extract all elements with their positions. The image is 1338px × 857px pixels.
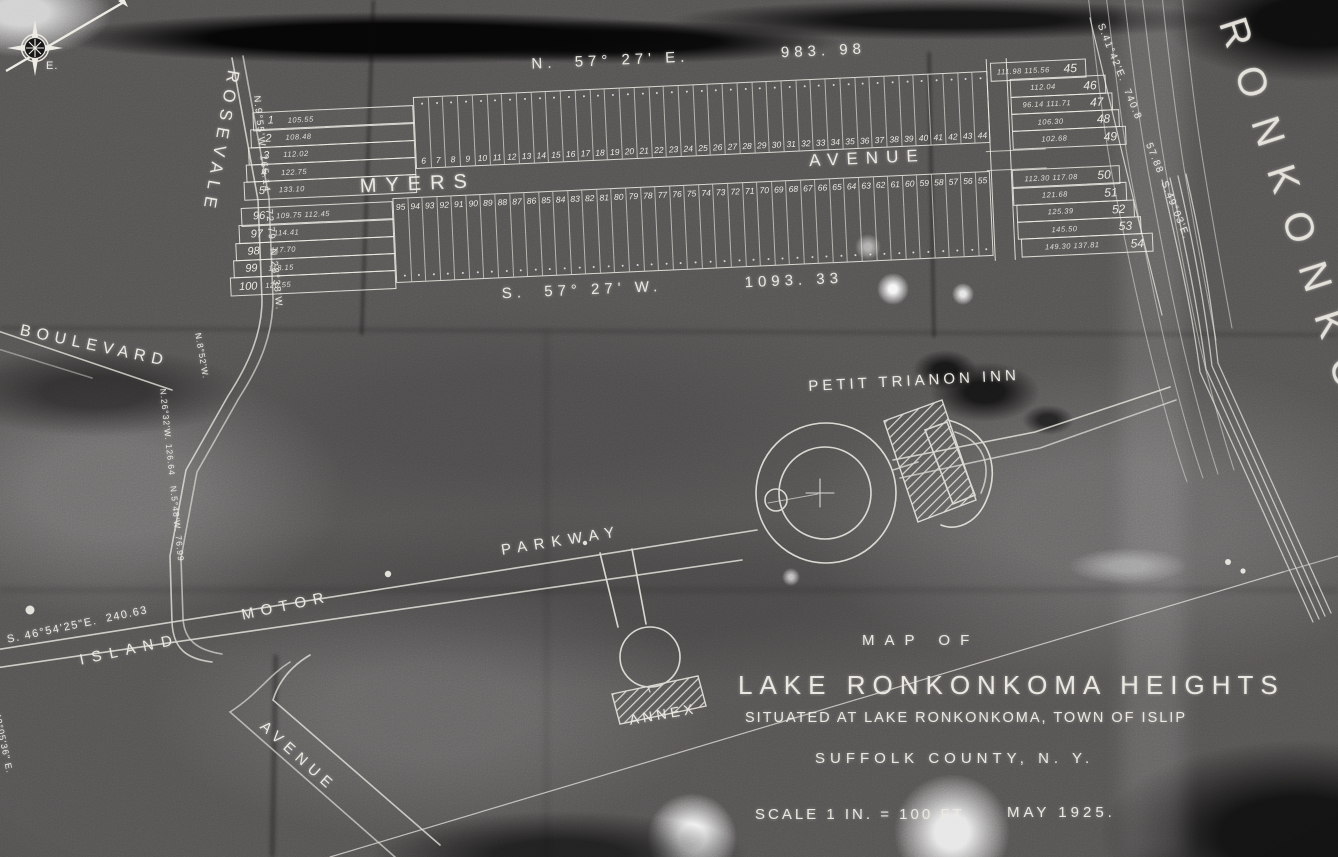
subdivision-plat: N. 57° 27' E. 983. 98 S. 57° 27' W. 1093…	[238, 61, 1209, 364]
annex-label: ANNEX	[628, 700, 698, 728]
title-map-of: MAP OF	[862, 632, 979, 649]
lake-name-label: RONKONKOMA	[1209, 12, 1338, 514]
title-scale: SCALE 1 IN. = 100 FT.	[755, 806, 970, 823]
lots-95-55: 9594939291908988878685848382818079787776…	[392, 171, 993, 283]
title-situated: SITUATED AT LAKE RONKONKOMA, TOWN OF ISL…	[745, 710, 1187, 726]
title-date: MAY 1925.	[1007, 804, 1116, 821]
lots-96-100: 96109.75 112.4597114.4198117.7099118.151…	[227, 201, 397, 295]
street-label-parkway: PARKWAY	[500, 523, 622, 559]
bearing-parkway: S. 46°54'25"E. 240.63	[6, 604, 149, 646]
street-label-avenue-sw: AVENUE	[257, 718, 340, 795]
map-photo: E. N. 57° 27' E. 983. 98 S. 57° 27' W. 1…	[0, 0, 1338, 857]
title-main: LAKE RONKONKOMA HEIGHTS	[738, 670, 1285, 701]
fabric-crease	[270, 655, 278, 857]
street-label-island: ISLAND	[78, 631, 181, 669]
street-label-motor: MOTOR	[240, 588, 332, 623]
lots-50-54: 50112.30 117.0851121.6852125.3953145.505…	[1012, 160, 1236, 256]
lots-45-49: 45111.98 115.5646112.044796.14 111.71481…	[990, 53, 1214, 149]
inn-label: PETIT TRIANON INN	[808, 367, 1020, 395]
compass-east-label: E.	[46, 60, 58, 72]
avenue-corridor	[986, 148, 1047, 171]
fabric-crease	[0, 588, 1338, 592]
fabric-crease	[545, 330, 548, 857]
street-label-avenue: AVENUE	[809, 146, 926, 171]
title-county: SUFFOLK COUNTY, N. Y.	[815, 750, 1094, 767]
bearing-southwest: 43°05'36" E.	[0, 712, 15, 774]
street-label-rosevale: ROSEVALE	[198, 69, 243, 217]
compass-rose: E.	[0, 0, 150, 95]
lot-row: 49102.68	[1012, 126, 1127, 150]
bearing-west-road: N.26°32'W. 126.64 N.5°48'W. 76.99	[158, 388, 186, 562]
compass-rose-icon	[0, 0, 150, 95]
lot-cell: 55	[975, 172, 992, 256]
bearing-west-road-upper: N.8°52'W.	[193, 332, 211, 380]
bearing-north-line: N. 57° 27' E. 983. 98	[531, 40, 866, 72]
street-label-boulevard: BOULEVARD	[18, 322, 170, 371]
